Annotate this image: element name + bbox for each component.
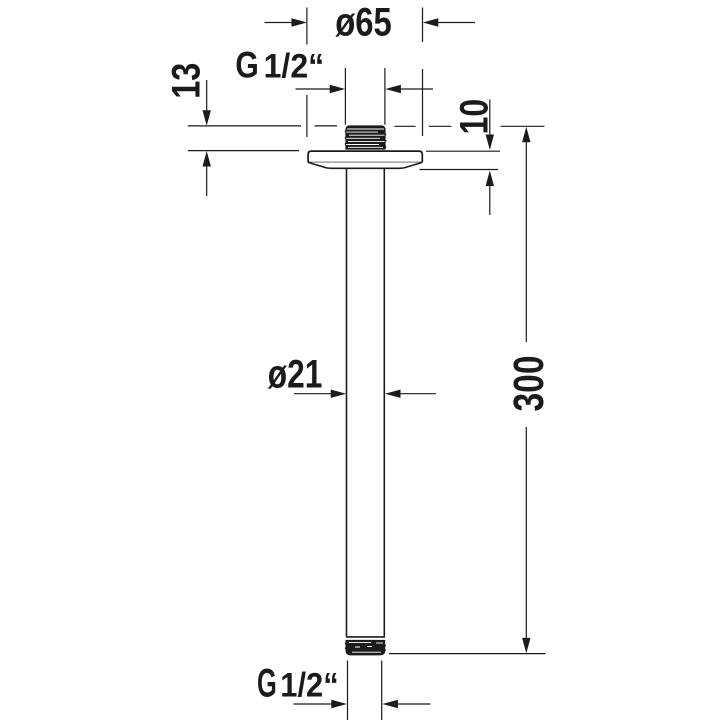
svg-text:1/2“: 1/2“ [280,667,338,705]
svg-text:G: G [235,44,258,86]
svg-text:G: G [257,662,277,706]
svg-text:300: 300 [505,356,553,412]
svg-text:10: 10 [452,99,496,135]
svg-text:1/2“: 1/2“ [264,48,325,86]
svg-text:ø21: ø21 [268,352,323,396]
svg-text:13: 13 [165,63,209,99]
svg-text:ø65: ø65 [335,1,392,45]
